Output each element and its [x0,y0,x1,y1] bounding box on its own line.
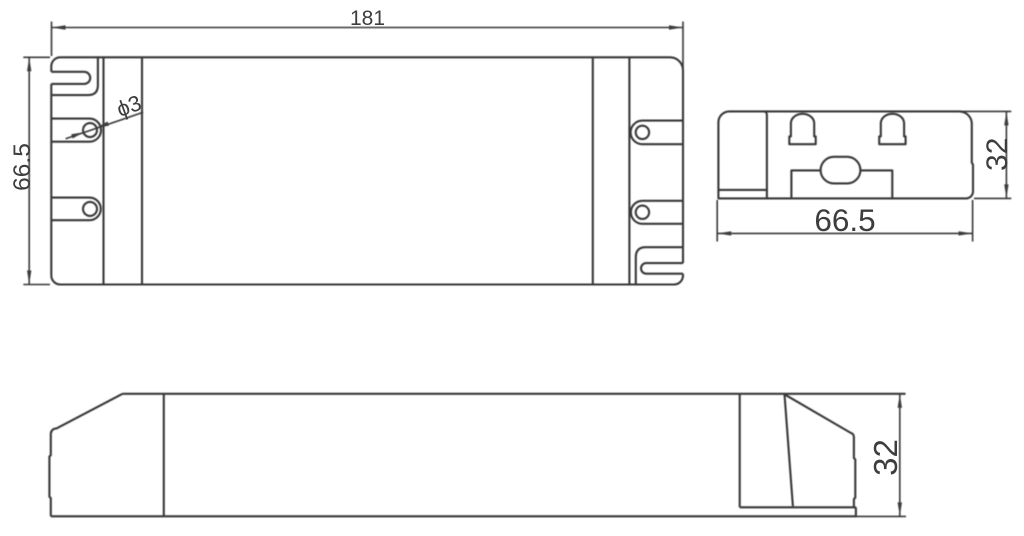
svg-text:181: 181 [350,7,385,30]
svg-text:ϕ3: ϕ3 [113,90,145,122]
svg-text:32: 32 [867,439,904,476]
svg-text:66.5: 66.5 [814,202,875,238]
svg-text:32: 32 [981,138,1014,171]
svg-text:66.5: 66.5 [9,143,36,191]
